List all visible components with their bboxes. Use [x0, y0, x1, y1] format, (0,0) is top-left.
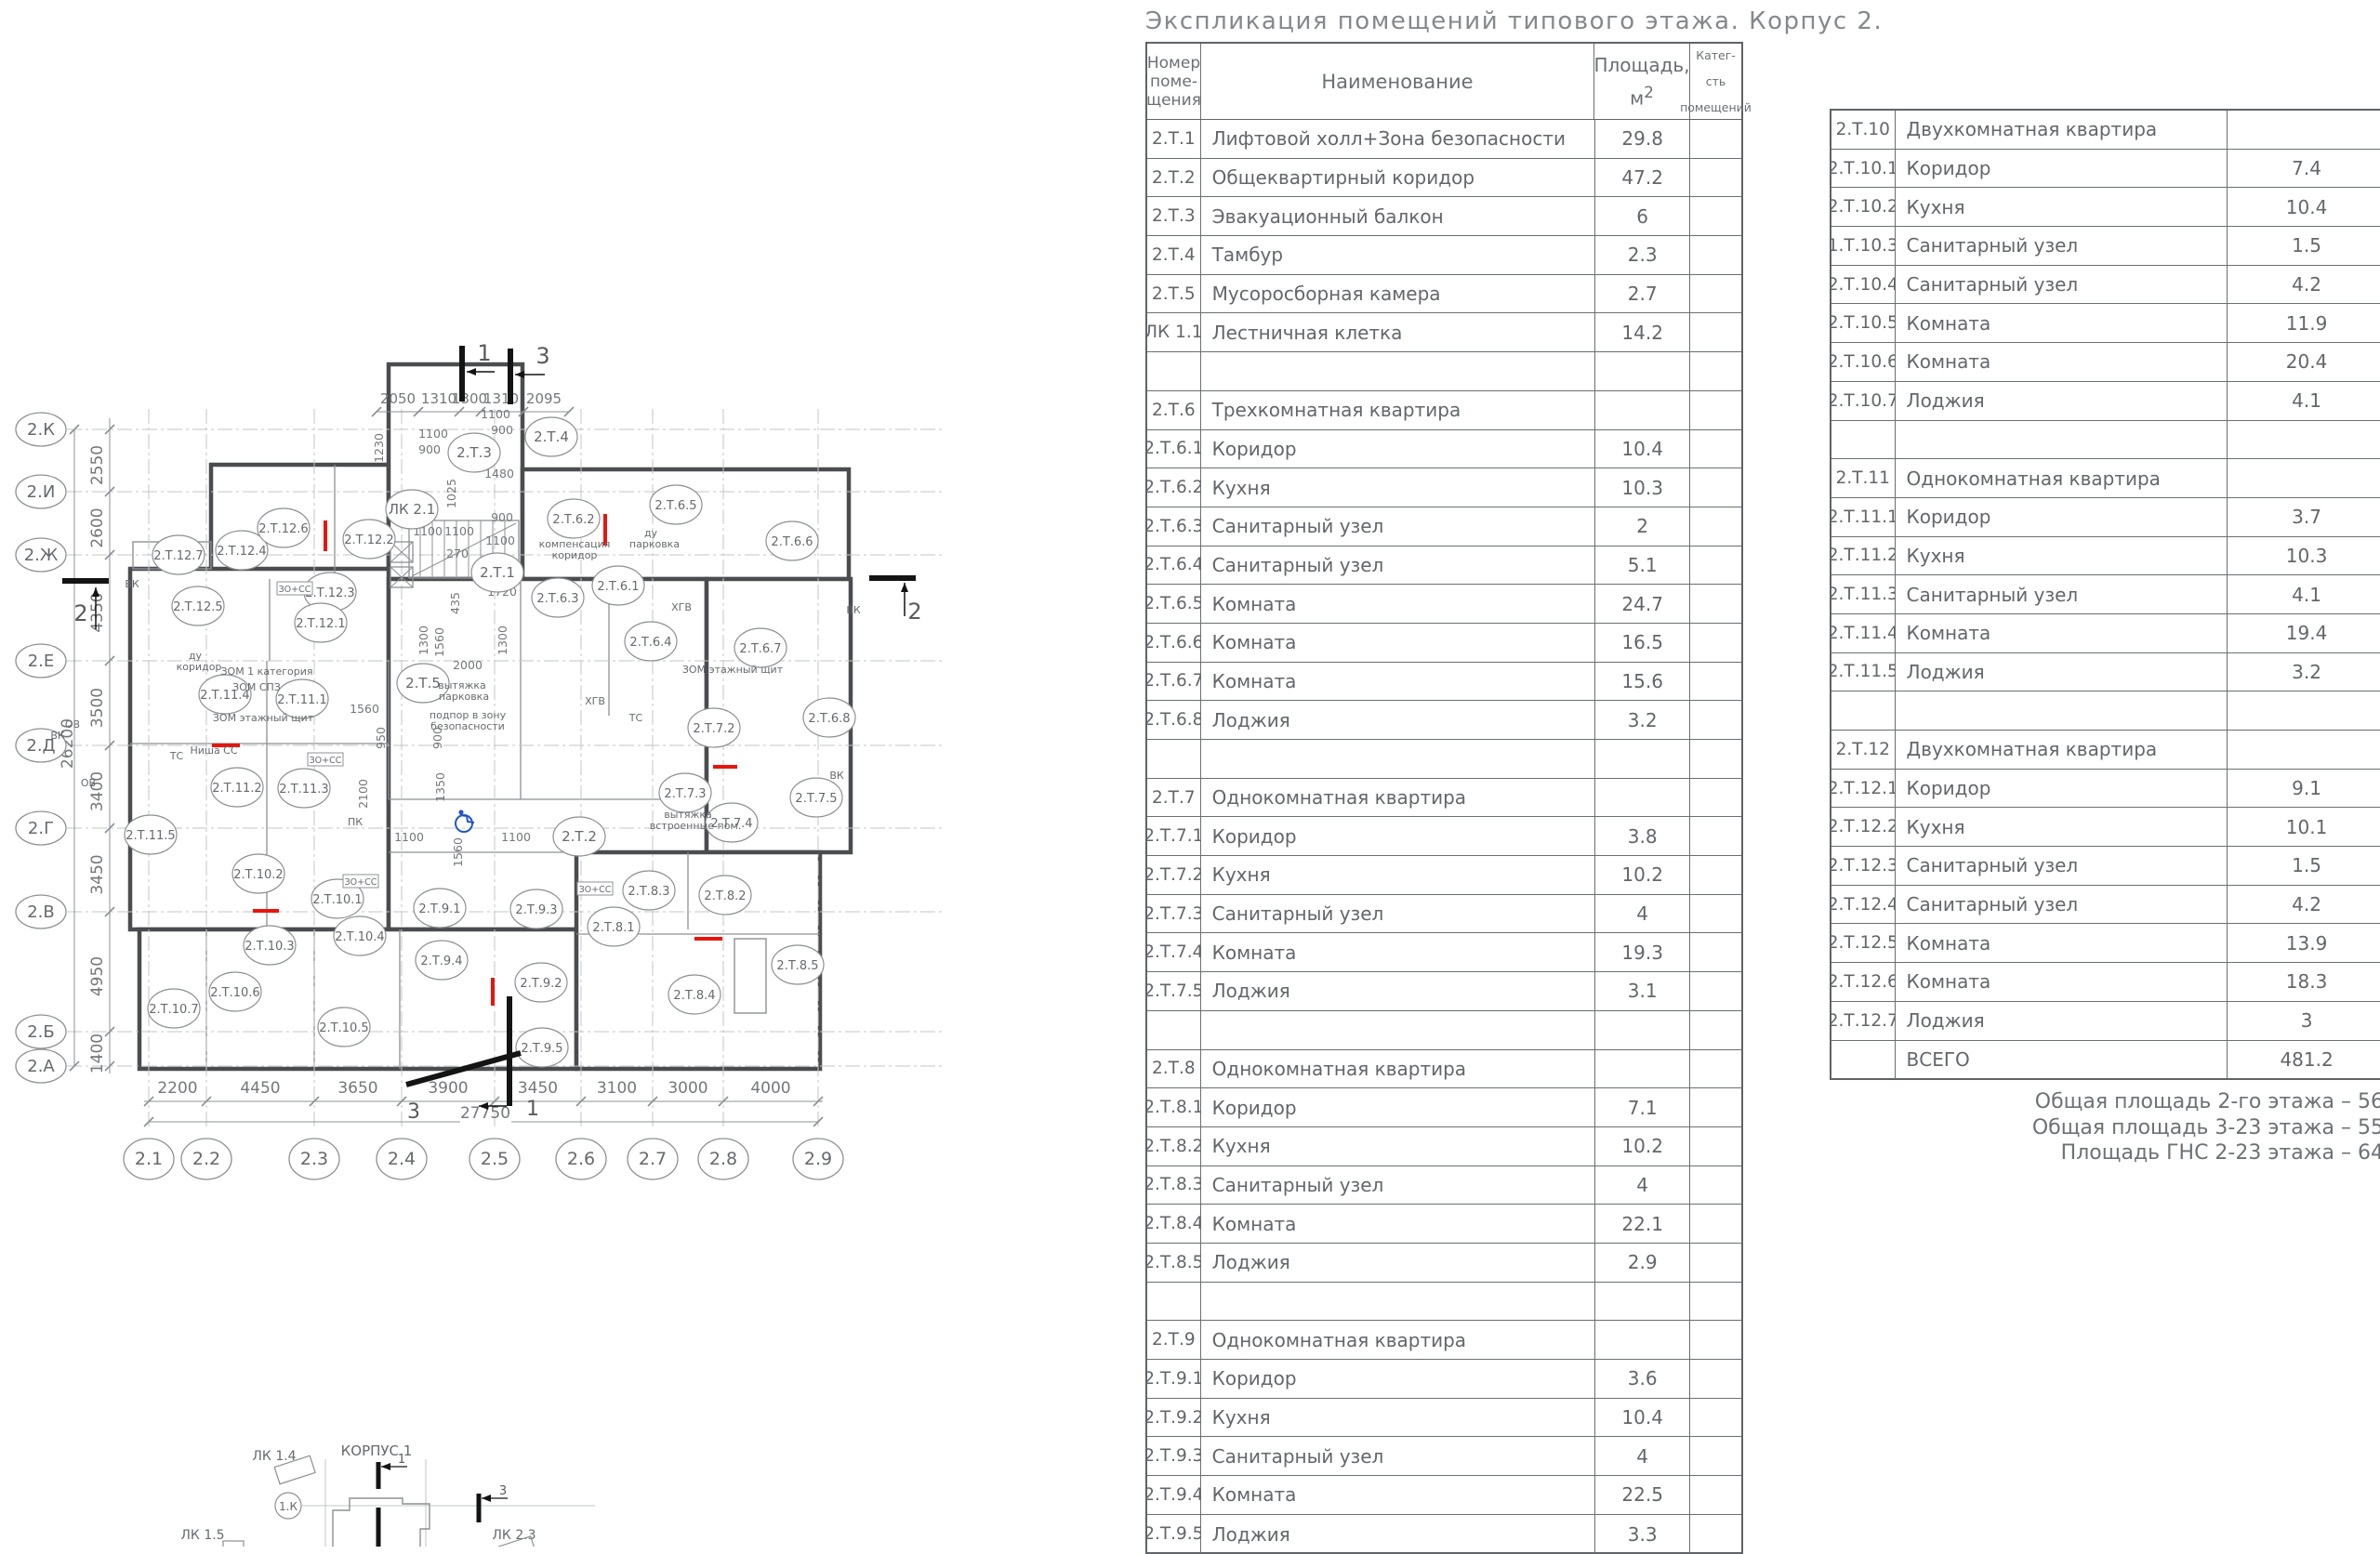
dimension-label: 1300	[452, 390, 487, 407]
explication-table: Номер поме- щения Наименование Площадь, …	[1145, 42, 1743, 1554]
dimension-label: 1560	[350, 702, 379, 716]
header-number: Номер	[1147, 54, 1200, 72]
table-row: 2.Т.9.2Кухня10.4	[1147, 1399, 1741, 1438]
cell-name: Комната	[1201, 585, 1595, 623]
cell-value	[1831, 421, 1896, 459]
key-plan-label: ЛК 1.4	[252, 1449, 296, 1464]
dimension-label: 1350	[433, 772, 447, 802]
room-label: 2.Т.6.4	[629, 636, 671, 650]
cell-value: 2.Т.12.6	[1831, 963, 1896, 1001]
cell-value	[1831, 691, 1896, 730]
annotation: ЗО+СС	[579, 885, 612, 895]
dimension-label: 900	[491, 423, 513, 437]
room-label: 2.Т.11.3	[279, 783, 328, 797]
table-row: 2.Т.8.3Санитарный узел4	[1147, 1166, 1741, 1205]
cell-value: 3.2	[2228, 653, 2380, 691]
dimension-label: 1300	[496, 626, 509, 655]
room-label: 2.Т.4	[534, 428, 569, 445]
table-row: 2.Т.12.6Комната18.3	[1831, 963, 2380, 1002]
cell-name: Санитарный узел	[1896, 227, 2228, 265]
annotation: ЗО+СС	[279, 585, 311, 595]
drawing-sheet: { "title": "Экспликация помещений типово…	[0, 0, 2380, 1547]
table-row: 2.Т.10Двухкомнатная квартира	[1831, 111, 2380, 150]
cell-value: 1.5	[2228, 847, 2380, 885]
annotation: ЗОМ этажный щит	[213, 712, 314, 724]
cell-value: 1.5	[2228, 227, 2380, 265]
room-label: 2.Т.9.5	[521, 1042, 562, 1056]
cell-value	[1690, 1283, 1741, 1321]
cell-value: 10.3	[2228, 537, 2380, 575]
cell-value: 3.3	[1595, 1515, 1690, 1554]
table-row: 2.Т.8.1Коридор7.1	[1147, 1088, 1741, 1127]
cell-name: Кухня	[1896, 808, 2228, 846]
dimension-label: 1100	[444, 524, 474, 538]
table-row: 2.Т.7.5Лоджия3.1	[1147, 972, 1741, 1011]
annotation: ТС	[628, 712, 643, 724]
cell-value: 11.9	[2228, 304, 2380, 342]
cell-value: 13.9	[2228, 924, 2380, 962]
cell-value	[1147, 1283, 1201, 1321]
cell-value: 24.7	[1595, 585, 1690, 623]
table-row: 2.Т.7Однокомнатная квартира	[1147, 779, 1741, 818]
cell-value: 2.Т.6.3	[1147, 507, 1201, 546]
cell-value: 7.4	[2228, 150, 2380, 188]
table-row: 2.Т.6.7Комната15.6	[1147, 663, 1741, 702]
cell-name: Тамбур	[1201, 236, 1595, 274]
cell-name: Комната	[1201, 1476, 1595, 1514]
cell-name: Комната	[1201, 1205, 1595, 1243]
cell-name: Санитарный узел	[1896, 847, 2228, 885]
cell-name: Коридор	[1201, 430, 1595, 468]
cell-name: Комната	[1896, 924, 2228, 962]
cell-value	[1690, 1515, 1741, 1554]
table-row: 2.Т.6.2Кухня10.3	[1147, 468, 1741, 507]
table-row: 2.Т.10.2Кухня10.4	[1831, 188, 2380, 227]
cell-value: 22.1	[1595, 1205, 1690, 1243]
axis-label: 2.1	[135, 1149, 163, 1169]
cell-name: Трехкомнатная квартира	[1201, 391, 1595, 429]
room-label: 2.Т.12.6	[258, 522, 308, 536]
cell-name: Кухня	[1201, 1399, 1595, 1437]
cell-name: Коридор	[1896, 150, 2228, 188]
table-row: 2.Т.6.4Санитарный узел5.1	[1147, 547, 1741, 586]
cell-value: 3	[2228, 1002, 2380, 1040]
room-label: 2.Т.8.3	[628, 885, 669, 899]
cell-value	[1690, 663, 1741, 701]
annotation: ВК	[50, 730, 65, 742]
cell-name: Санитарный узел	[1896, 575, 2228, 613]
table-row: 2.Т.12.3Санитарный узел1.5	[1831, 847, 2380, 886]
cell-value: 2.Т.6.8	[1147, 701, 1201, 739]
cell-value: 19.4	[2228, 614, 2380, 652]
room-label: 2.Т.6.7	[739, 642, 781, 656]
total-area-note: Площадь ГНС 2-23 этажа – 64	[1990, 1140, 2380, 1166]
annotation: ЗОМ 1 категория	[220, 665, 312, 678]
room-label: 2.Т.10.3	[245, 940, 294, 954]
table-row	[1147, 352, 1741, 391]
cell-value	[2228, 421, 2380, 459]
table-row: 2.Т.7.3Санитарный узел4	[1147, 895, 1741, 934]
cell-value: 2.Т.9.2	[1147, 1399, 1201, 1437]
cell-name: Комната	[1201, 933, 1595, 971]
cell-name: Комната	[1896, 963, 2228, 1001]
cell-value: 2.7	[1595, 275, 1690, 313]
section-label: 1	[477, 340, 491, 366]
table-row: 2.Т.8Однокомнатная квартира	[1147, 1050, 1741, 1089]
cell-value	[1595, 740, 1690, 778]
table-row: 2.Т.10.5Комната11.9	[1831, 304, 2380, 343]
cell-value	[1690, 1321, 1741, 1359]
cell-value	[1690, 779, 1741, 817]
cell-value	[1595, 1321, 1690, 1359]
cell-value: 2.Т.11.1	[1831, 498, 1896, 536]
axis-label: 2.4	[388, 1149, 416, 1169]
room-label: 2.Т.10.4	[335, 930, 384, 944]
cell-name: Санитарный узел	[1896, 266, 2228, 304]
room-label: 2.Т.6.2	[552, 513, 594, 527]
table-row: 2.Т.10.6Комната20.4	[1831, 343, 2380, 382]
cell-name: Лоджия	[1201, 1515, 1595, 1554]
cell-value: 2.Т.12.5	[1831, 924, 1896, 962]
room-label: 2.Т.1	[480, 564, 515, 581]
cell-name: Лоджия	[1201, 1244, 1595, 1282]
cell-value: 2.Т.7	[1147, 779, 1201, 817]
dimension-label: 1560	[451, 837, 465, 867]
cell-value: 2.Т.6.6	[1147, 624, 1201, 662]
cell-value	[1690, 236, 1741, 274]
cell-value: 3.2	[1595, 701, 1690, 739]
cell-value: 2.Т.6.4	[1147, 547, 1201, 585]
cell-value	[1690, 1166, 1741, 1205]
axis-label: 2.Е	[28, 652, 55, 671]
header-area: Площадь,	[1593, 51, 1689, 79]
room-label: 2.Т.8.1	[592, 921, 634, 935]
cell-value	[1147, 352, 1201, 390]
cell-name: Лоджия	[1201, 972, 1595, 1010]
annotation: ВК	[125, 578, 139, 590]
cell-value: 16.5	[1595, 624, 1690, 662]
cell-value	[1690, 1205, 1741, 1243]
cell-value: 7.1	[1595, 1088, 1690, 1126]
room-label: 2.Т.10.5	[319, 1021, 368, 1035]
dimension-label: 1100	[481, 407, 510, 421]
cell-name: Мусоросборная камера	[1201, 275, 1595, 313]
cell-value: 2.Т.8.1	[1147, 1088, 1201, 1126]
cell-value: 2.Т.10.1	[1831, 150, 1896, 188]
cell-value: 3.1	[1595, 972, 1690, 1010]
table-row: 2.Т.6.5Комната24.7	[1147, 585, 1741, 624]
cell-value	[1690, 391, 1741, 429]
cell-value: 9.1	[2228, 770, 2380, 808]
cell-value	[1690, 895, 1741, 933]
cell-name	[1201, 352, 1595, 390]
cell-value: 2.9	[1595, 1244, 1690, 1282]
cell-name: Однокомнатная квартира	[1201, 1321, 1595, 1359]
table-row: 2.Т.10.4Санитарный узел4.2	[1831, 266, 2380, 305]
table-row: 2.Т.12.1Коридор9.1	[1831, 770, 2380, 809]
dimension-label: 3450	[518, 1079, 558, 1098]
room-label: 2.Т.10.2	[233, 868, 283, 882]
total-area-note: Общая площадь 3-23 этажа – 55	[1990, 1115, 2380, 1141]
cell-value	[1147, 1011, 1201, 1049]
room-label: 2.Т.10.7	[149, 1003, 198, 1017]
room-label: 2.Т.9.2	[520, 977, 562, 991]
section-label: 1	[398, 1453, 405, 1467]
cell-value	[1690, 740, 1741, 778]
floor-plan: 2550260043503500340034504950140026200220…	[0, 0, 1097, 1547]
cell-value	[1690, 856, 1741, 894]
cell-value: 2.Т.8.2	[1147, 1127, 1201, 1165]
axis-label: 2.К	[27, 420, 55, 440]
axis-label: 2.5	[481, 1149, 509, 1169]
table-row: 2.Т.8.2Кухня10.2	[1147, 1127, 1741, 1166]
table-row: 2.Т.10.1Коридор7.4	[1831, 150, 2380, 189]
cell-value	[1690, 1088, 1741, 1126]
cell-value	[1595, 1011, 1690, 1049]
cell-value	[1690, 1050, 1741, 1088]
room-label: 2.Т.3	[456, 444, 492, 461]
cell-value: 2.Т.12	[1831, 731, 1896, 769]
room-label: 2.Т.7.5	[795, 792, 837, 806]
cell-value	[1690, 313, 1741, 351]
cell-value: 22.5	[1595, 1476, 1690, 1514]
cell-value: 14.2	[1595, 313, 1690, 351]
explication-table-continued: 2.Т.10Двухкомнатная квартира2.Т.10.1Кори…	[1830, 109, 2380, 1080]
table-row: ЛК 1.1Лестничная клетка14.2	[1147, 313, 1741, 352]
cell-value	[1690, 624, 1741, 662]
table-row: 2.Т.11Однокомнатная квартира	[1831, 459, 2380, 498]
cell-name: Эвакуационный балкон	[1201, 197, 1595, 235]
cell-name: Коридор	[1201, 1360, 1595, 1398]
cell-value	[1690, 1011, 1741, 1049]
dimension-label: 3650	[337, 1079, 377, 1098]
cell-value	[1690, 1360, 1741, 1398]
cell-name: Комната	[1201, 624, 1595, 662]
cell-value: 3.6	[1595, 1360, 1690, 1398]
table-row: 2.Т.12Двухкомнатная квартира	[1831, 731, 2380, 770]
dimension-label: 2050	[380, 390, 416, 407]
cell-value: 2.Т.7.1	[1147, 817, 1201, 855]
cell-name: Лоджия	[1201, 701, 1595, 739]
cell-value: 2.Т.12.4	[1831, 886, 1896, 924]
cell-value: 2.Т.8.3	[1147, 1166, 1201, 1205]
table-row: 2.Т.4Тамбур2.3	[1147, 236, 1741, 275]
axis-label: 2.7	[639, 1149, 667, 1169]
cell-name: Двухкомнатная квартира	[1896, 731, 2228, 769]
cell-value: 10.2	[1595, 856, 1690, 894]
section-arrow	[482, 1495, 491, 1502]
page-title: Экспликация помещений типового этажа. Ко…	[1145, 7, 1743, 35]
dimension-label: 1310	[483, 390, 519, 407]
cell-value	[1595, 391, 1690, 429]
table-row	[1147, 1011, 1741, 1050]
cell-value: 4.2	[2228, 886, 2380, 924]
table-row: 2.Т.6Трехкомнатная квартира	[1147, 391, 1741, 430]
cell-name: Санитарный узел	[1201, 1437, 1595, 1475]
cell-value	[1690, 275, 1741, 313]
cell-value: 10.4	[1595, 430, 1690, 468]
room-label: 2.Т.6.3	[536, 592, 578, 606]
cell-name: Кухня	[1201, 468, 1595, 507]
dimension-label: 3450	[88, 854, 107, 894]
cell-value: 4	[1595, 1166, 1690, 1205]
cell-value	[1690, 120, 1741, 158]
cell-name: Комната	[1201, 663, 1595, 701]
table-row: 2.Т.6.6Комната16.5	[1147, 624, 1741, 663]
cell-value	[1690, 1399, 1741, 1437]
table-header: Номер поме- щения Наименование Площадь, …	[1147, 44, 1741, 120]
cell-name: Лестничная клетка	[1201, 313, 1595, 351]
table-row: 2.Т.2Общеквартирный коридор47.2	[1147, 159, 1741, 198]
cell-name	[1201, 1283, 1595, 1321]
cell-value	[1690, 701, 1741, 739]
cell-value: 2.Т.3	[1147, 197, 1201, 235]
cell-value: 2.Т.10.2	[1831, 188, 1896, 226]
cell-value	[2228, 691, 2380, 730]
table-row: 2.Т.9.4Комната22.5	[1147, 1476, 1741, 1515]
cell-value: 2.Т.9.5	[1147, 1515, 1201, 1554]
cell-value: 2.Т.9.3	[1147, 1437, 1201, 1475]
section-arrow	[381, 1463, 390, 1470]
table-row: 2.Т.12.7Лоджия3	[1831, 1002, 2380, 1041]
cell-name: Однокомнатная квартира	[1201, 779, 1595, 817]
dimension-label: 2000	[453, 658, 483, 672]
cell-value: 2.Т.7.5	[1147, 972, 1201, 1010]
cell-name: Лоджия	[1896, 1002, 2228, 1040]
axis-label: 2.Ж	[24, 546, 59, 565]
cell-value: 2.Т.10.6	[1831, 343, 1896, 381]
table-body: 2.Т.1Лифтовой холл+Зона безопасности29.8…	[1147, 120, 1741, 1553]
cell-name: Двухкомнатная квартира	[1896, 111, 2228, 149]
dimension-label: 2550	[88, 445, 107, 485]
table-row: 2.Т.9.3Санитарный узел4	[1147, 1437, 1741, 1476]
room-label: 2.Т.6.6	[771, 535, 813, 549]
cell-value	[1690, 159, 1741, 197]
cell-value	[2228, 459, 2380, 497]
cell-value: 2.Т.11.4	[1831, 614, 1896, 652]
cell-value: 20.4	[2228, 343, 2380, 381]
cell-value: 10.1	[2228, 808, 2380, 846]
cell-value	[1690, 547, 1741, 585]
room-label: 2.Т.9.1	[418, 902, 460, 916]
cell-value: 2.Т.11.3	[1831, 575, 1896, 613]
annotation: ЗОМ этажный щит	[682, 664, 784, 676]
cell-value	[1595, 779, 1690, 817]
cell-value: 481.2	[2228, 1041, 2380, 1080]
section-label: 2	[73, 600, 87, 626]
table-row: 2.Т.9.5Лоджия3.3	[1147, 1515, 1741, 1554]
cell-value: 2.Т.2	[1147, 159, 1201, 197]
cell-name: ВСЕГО	[1896, 1041, 2228, 1080]
cell-value: 2.Т.4	[1147, 236, 1201, 274]
section-label: 3	[407, 1100, 420, 1124]
cell-value: 2.Т.6	[1147, 391, 1201, 429]
cell-value: 6	[1595, 197, 1690, 235]
cell-name: Коридор	[1896, 498, 2228, 536]
room-label: ЛК 2.1	[389, 501, 436, 518]
dimension-label: 2100	[356, 779, 370, 809]
cell-value: 2.Т.8.5	[1147, 1244, 1201, 1282]
cell-value	[1690, 1244, 1741, 1282]
annotation: парковка	[629, 538, 680, 550]
cell-name: Коридор	[1896, 770, 2228, 808]
dimension-label: 2200	[157, 1079, 197, 1098]
cell-value: 2.Т.8.4	[1147, 1205, 1201, 1243]
cell-value: 2.Т.1	[1147, 120, 1201, 158]
section-label: 3	[499, 1484, 507, 1498]
cell-name: Санитарный узел	[1201, 895, 1595, 933]
table-row: 2.Т.12.2Кухня10.1	[1831, 808, 2380, 847]
section-label: 2	[907, 599, 921, 625]
table-row: 2.Т.11.3Санитарный узел4.1	[1831, 575, 2380, 614]
cell-name	[1896, 421, 2228, 459]
cell-value: 5.1	[1595, 547, 1690, 585]
table-row: 2.Т.7.1Коридор3.8	[1147, 817, 1741, 856]
cell-value: 10.2	[1595, 1127, 1690, 1165]
key-plan-label: ЛК 2.3	[492, 1528, 535, 1543]
cell-value: 2.Т.9.4	[1147, 1476, 1201, 1514]
axis-label: 2.В	[27, 902, 55, 922]
cell-value: 29.8	[1595, 120, 1690, 158]
axis-label: 2.6	[567, 1149, 595, 1169]
cell-name: Однокомнатная квартира	[1201, 1050, 1595, 1088]
annotation: коридор	[552, 549, 598, 561]
cell-name: Коридор	[1201, 1088, 1595, 1126]
dimension-label: 1400	[88, 1034, 107, 1073]
cell-value: 2.Т.12.7	[1831, 1002, 1896, 1040]
total-area-notes: Общая площадь 2-го этажа – 56 Общая площ…	[1990, 1089, 2380, 1166]
table-row: 2.Т.8.4Комната22.1	[1147, 1205, 1741, 1244]
axis-label: 2.Г	[28, 819, 54, 838]
cell-value: 2.Т.11.2	[1831, 537, 1896, 575]
cell-value	[1595, 1050, 1690, 1088]
cell-value	[1690, 468, 1741, 507]
annotation: ЗО+СС	[310, 756, 342, 766]
header-count: Катег-сть	[1690, 43, 1741, 95]
room-label: 2.Т.12.2	[344, 533, 393, 547]
cell-name: Санитарный узел	[1201, 547, 1595, 585]
cell-name: Кухня	[1201, 856, 1595, 894]
cell-name	[1201, 1011, 1595, 1049]
axis-label: 2.9	[804, 1149, 832, 1169]
room-label: 2.Т.8.4	[673, 989, 715, 1003]
cell-name: Лоджия	[1896, 653, 2228, 691]
table-row	[1831, 421, 2380, 460]
cell-value	[1690, 197, 1741, 235]
annotation: коридор	[177, 661, 222, 673]
table-row: 1.Т.10.3Санитарный узел1.5	[1831, 227, 2380, 266]
key-plan-stair	[223, 1541, 244, 1547]
table-row: 2.Т.6.8Лоджия3.2	[1147, 701, 1741, 740]
room-label: 2.Т.10.6	[210, 986, 259, 1000]
cell-value: 1.Т.10.3	[1831, 227, 1896, 265]
cell-value: 2.Т.7.3	[1147, 895, 1201, 933]
cell-name: Однокомнатная квартира	[1896, 459, 2228, 497]
cell-value	[1690, 972, 1741, 1010]
cell-name: Комната	[1896, 343, 2228, 381]
dimension-label: 435	[448, 592, 462, 614]
cell-value: 10.4	[1595, 1399, 1690, 1437]
cell-name: Санитарный узел	[1201, 1166, 1595, 1205]
cell-name: Комната	[1896, 614, 2228, 652]
room-label: 2.Т.7.3	[664, 787, 706, 801]
table-row: 2.Т.12.5Комната13.9	[1831, 924, 2380, 963]
cell-value	[1690, 430, 1741, 468]
cell-value: 2.Т.12.3	[1831, 847, 1896, 885]
table-row: 2.Т.9Однокомнатная квартира	[1147, 1321, 1741, 1360]
cell-name: Кухня	[1896, 188, 2228, 226]
cell-value: 2.Т.10.4	[1831, 266, 1896, 304]
